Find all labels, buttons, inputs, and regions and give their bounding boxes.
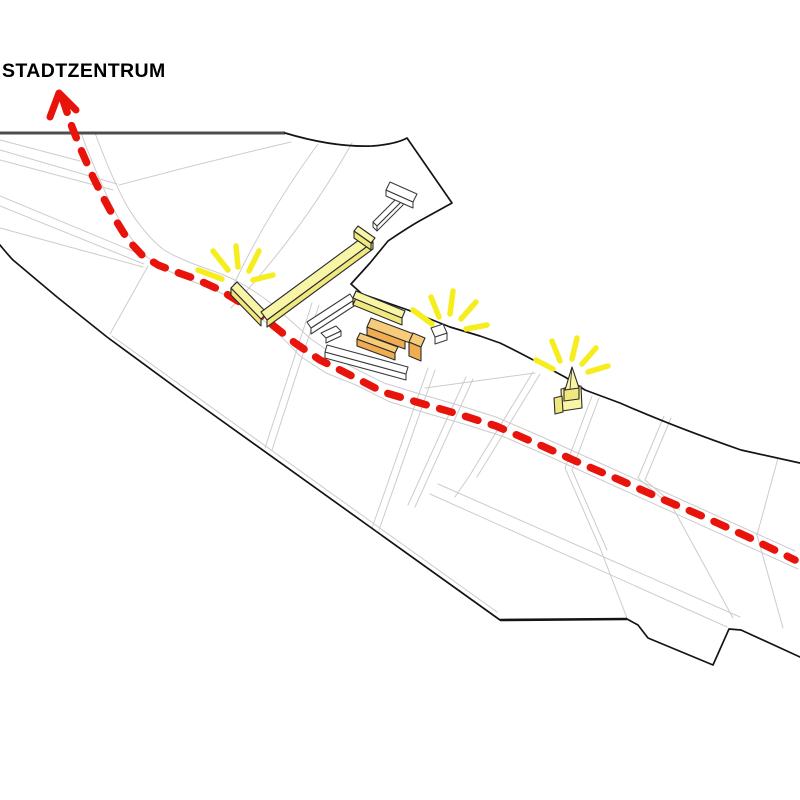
site-plan-svg: STADTZENTRUM [0, 0, 800, 800]
street-arc-2 [233, 144, 318, 286]
street-left-6 [0, 140, 80, 161]
site-plan-canvas: STADTZENTRUM [0, 0, 800, 800]
ray [431, 297, 439, 317]
building-central-hall [357, 318, 425, 361]
ray [588, 366, 608, 372]
building-t-shaped [373, 182, 417, 231]
ray [461, 302, 476, 319]
stadtzentrum-label: STADTZENTRUM [2, 60, 166, 82]
ray [466, 325, 487, 329]
ray [552, 341, 560, 361]
street-arc-1 [119, 142, 291, 185]
building-sliver-4 [431, 324, 447, 344]
street-lower-parallel-a [438, 484, 740, 617]
street-cross-3b [415, 379, 473, 507]
ray [236, 246, 238, 267]
street-route-north-edge [95, 133, 795, 551]
street-connector-west [110, 266, 148, 334]
ray [450, 291, 453, 314]
street-cross-4b [477, 374, 540, 477]
ray [249, 251, 259, 271]
ray [413, 310, 432, 324]
building-sliver-2 [321, 326, 341, 343]
boundary-bottom-heavy-segment [500, 619, 627, 620]
sunburst-l-building [198, 246, 273, 280]
ray [213, 251, 228, 270]
church-annex [554, 396, 563, 414]
street-arc-3 [231, 143, 352, 308]
ray [582, 348, 596, 364]
street-lower-parallel-b [430, 494, 727, 627]
street-boundary-parallel [112, 336, 497, 612]
sunburst-bar-building [413, 291, 487, 329]
ray [536, 360, 553, 369]
ray [253, 275, 273, 280]
street-cluster-to-church [425, 373, 535, 388]
building-bar [353, 291, 405, 325]
building-l-shaped [231, 226, 375, 327]
street-cross-2a [372, 368, 428, 528]
street-cross-3a [408, 377, 466, 505]
ray [572, 338, 577, 359]
ray [198, 270, 222, 279]
street-cross-5a [565, 396, 627, 618]
